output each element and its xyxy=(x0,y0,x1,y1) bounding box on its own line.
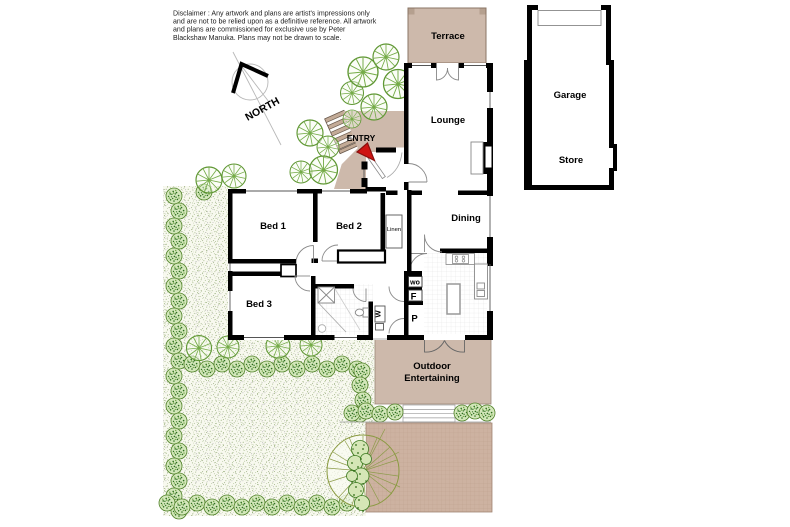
svg-text:Entertaining: Entertaining xyxy=(404,373,460,384)
svg-text:ENTRY: ENTRY xyxy=(347,133,376,143)
svg-text:Bed 2: Bed 2 xyxy=(336,221,362,232)
svg-text:Terrace: Terrace xyxy=(431,31,465,42)
svg-text:Outdoor: Outdoor xyxy=(413,361,451,372)
svg-text:Blackshaw Manuka. Plans may no: Blackshaw Manuka. Plans may not be drawn… xyxy=(173,35,341,42)
svg-text:wo: wo xyxy=(409,280,420,287)
svg-text:Disclaimer : Any artwork and p: Disclaimer : Any artwork and plans are a… xyxy=(173,11,370,18)
svg-text:Lounge: Lounge xyxy=(431,115,465,126)
svg-text:Linen: Linen xyxy=(387,227,401,233)
svg-text:Garage: Garage xyxy=(554,90,587,101)
svg-text:and are not to be relied upon: and are not to be relied upon as a defin… xyxy=(173,19,377,26)
svg-text:Dining: Dining xyxy=(451,213,481,224)
svg-text:Bed 1: Bed 1 xyxy=(260,221,287,232)
svg-text:W: W xyxy=(374,310,383,318)
svg-text:P: P xyxy=(411,314,418,325)
svg-text:Store: Store xyxy=(559,155,583,166)
svg-text:Bed 3: Bed 3 xyxy=(246,299,272,310)
svg-text:and plans are commissioned for: and plans are commissioned for exclusive… xyxy=(173,27,346,34)
svg-text:F: F xyxy=(411,292,417,303)
